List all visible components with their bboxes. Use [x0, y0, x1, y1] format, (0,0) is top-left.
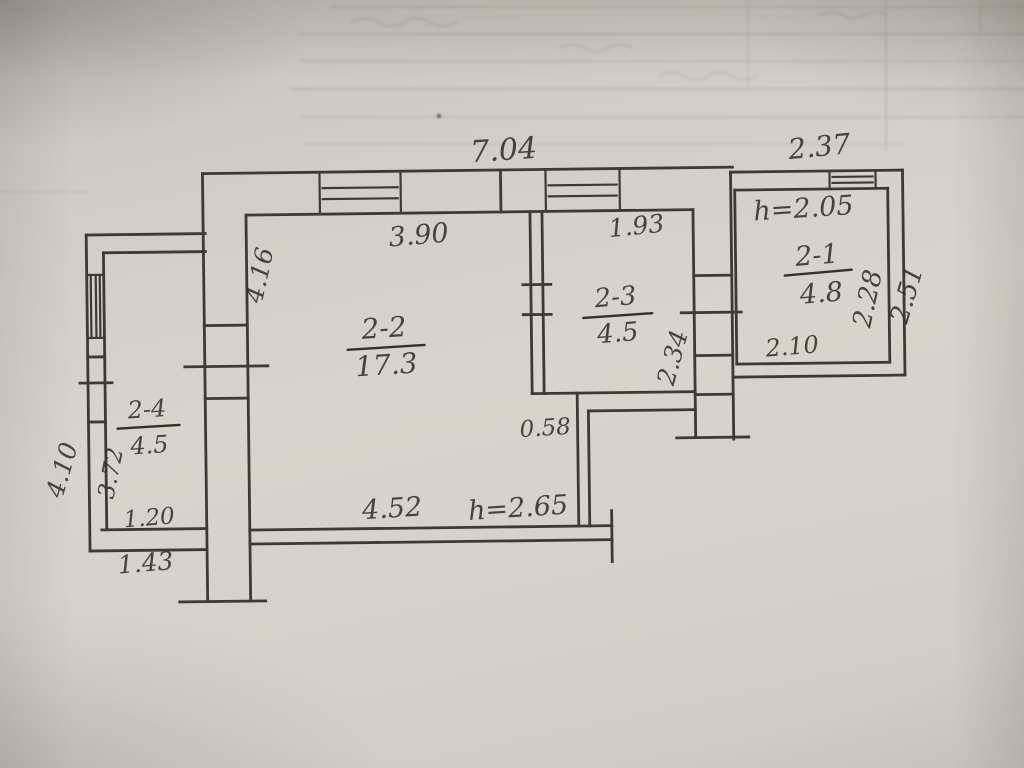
- window-glaze-line: [323, 198, 398, 199]
- wall-line: [250, 540, 612, 544]
- window-glaze-line: [100, 275, 101, 338]
- wall-hatch: [205, 398, 248, 399]
- dim-top-total: 7.04: [469, 131, 538, 170]
- window-edge: [619, 169, 620, 211]
- wall-line: [733, 375, 905, 377]
- floor-plan-drawing: 7.04 2.37 h=2.05 3.90 1.93 4.16 2.28 2.5…: [0, 0, 1024, 768]
- window-symbol-left: [87, 275, 105, 338]
- plan-lines-and-labels: 7.04 2.37 h=2.05 3.90 1.93 4.16 2.28 2.5…: [36, 126, 934, 604]
- room-2-3-area: 4.5: [595, 317, 640, 350]
- bleed-scribble: [820, 12, 886, 18]
- dim-top-right: 2.37: [786, 127, 852, 166]
- dim-corridor-wall-height: 2.34: [651, 327, 694, 389]
- dim-annex-outer-height: 4.10: [40, 439, 84, 502]
- wall-line: [530, 212, 532, 394]
- floor-plan-photo: 7.04 2.37 h=2.05 3.90 1.93 4.16 2.28 2.5…: [0, 0, 1024, 768]
- wall-line: [588, 410, 695, 411]
- dim-room22-width: 3.90: [387, 218, 449, 254]
- dim-right-outer-height: 2.51: [885, 263, 930, 328]
- window-symbol-top-left: [319, 171, 401, 214]
- wall-line: [735, 188, 888, 190]
- room-2-2-area: 17.3: [354, 346, 418, 383]
- wall-line: [577, 393, 579, 526]
- wall-line: [86, 234, 205, 235]
- dim-bottom-inner-width: 4.52: [360, 491, 423, 526]
- room-2-3-number: 2-3: [592, 281, 637, 314]
- dim-annex-inner-height: 3.72: [93, 446, 129, 501]
- wall-line: [250, 526, 612, 530]
- fraction-bar: [583, 313, 652, 318]
- window-glaze-line: [91, 275, 92, 338]
- dim-stub-wall: 0.58: [519, 414, 572, 443]
- ceiling-height-main-room: h=2.65: [467, 490, 569, 527]
- wall-line: [103, 252, 205, 253]
- wall-line: [202, 174, 207, 602]
- wall-end-cap: [612, 511, 613, 562]
- wall-line: [730, 172, 733, 439]
- wall-hatch: [681, 312, 741, 313]
- room-2-4-number: 2-4: [126, 394, 167, 425]
- room-2-4-area: 4.5: [128, 430, 169, 460]
- room-2-3-label: 2-3 4.5: [583, 281, 653, 351]
- wall-end-cap: [677, 437, 749, 438]
- room-2-2-number: 2-2: [359, 310, 407, 346]
- fraction-bar: [118, 425, 180, 429]
- bleed-scribble: [560, 45, 632, 52]
- room-2-1-number: 2-1: [793, 238, 840, 273]
- window-edge: [400, 171, 401, 213]
- dim-room23-width: 1.93: [607, 209, 665, 243]
- wall-line: [730, 170, 902, 172]
- wall-line: [86, 235, 90, 551]
- window-glaze-line: [96, 275, 97, 338]
- ink-dot: [437, 114, 441, 118]
- window-glaze-line: [323, 187, 398, 188]
- wall-hatch: [204, 325, 247, 326]
- wall-tick: [500, 170, 501, 212]
- wall-hatch: [185, 366, 268, 367]
- window-edge: [319, 172, 320, 214]
- wall-line: [202, 167, 732, 173]
- wall-line: [693, 210, 696, 438]
- ceiling-height-right-room: h=2.05: [753, 190, 855, 227]
- room-2-1-label: 2-1 4.8: [784, 238, 852, 311]
- window-glaze-line: [549, 196, 617, 197]
- window-symbol-top-middle: [545, 169, 620, 212]
- bleed-scribble: [660, 73, 756, 80]
- walls: [77, 165, 907, 603]
- dim-room21-inner-height: 2.28: [847, 267, 889, 331]
- dim-room21-bottom-width: 2.10: [763, 330, 820, 362]
- wall-line: [542, 211, 544, 393]
- dim-annex-bottom-outer: 1.43: [117, 546, 175, 579]
- window-symbol-top-right: [829, 170, 875, 189]
- window-glaze-line: [549, 185, 617, 186]
- bleed-scribble: [352, 18, 456, 26]
- wall-end-cap: [180, 601, 266, 602]
- dim-annex-bottom-inner: 1.20: [123, 503, 176, 533]
- window-edge: [545, 169, 546, 211]
- wall-line: [588, 411, 589, 526]
- wall-line: [737, 362, 890, 364]
- wall-line: [532, 392, 695, 394]
- room-2-1-area: 4.8: [798, 276, 844, 310]
- wall-line: [735, 190, 737, 364]
- room-2-2-label: 2-2 17.3: [347, 310, 425, 384]
